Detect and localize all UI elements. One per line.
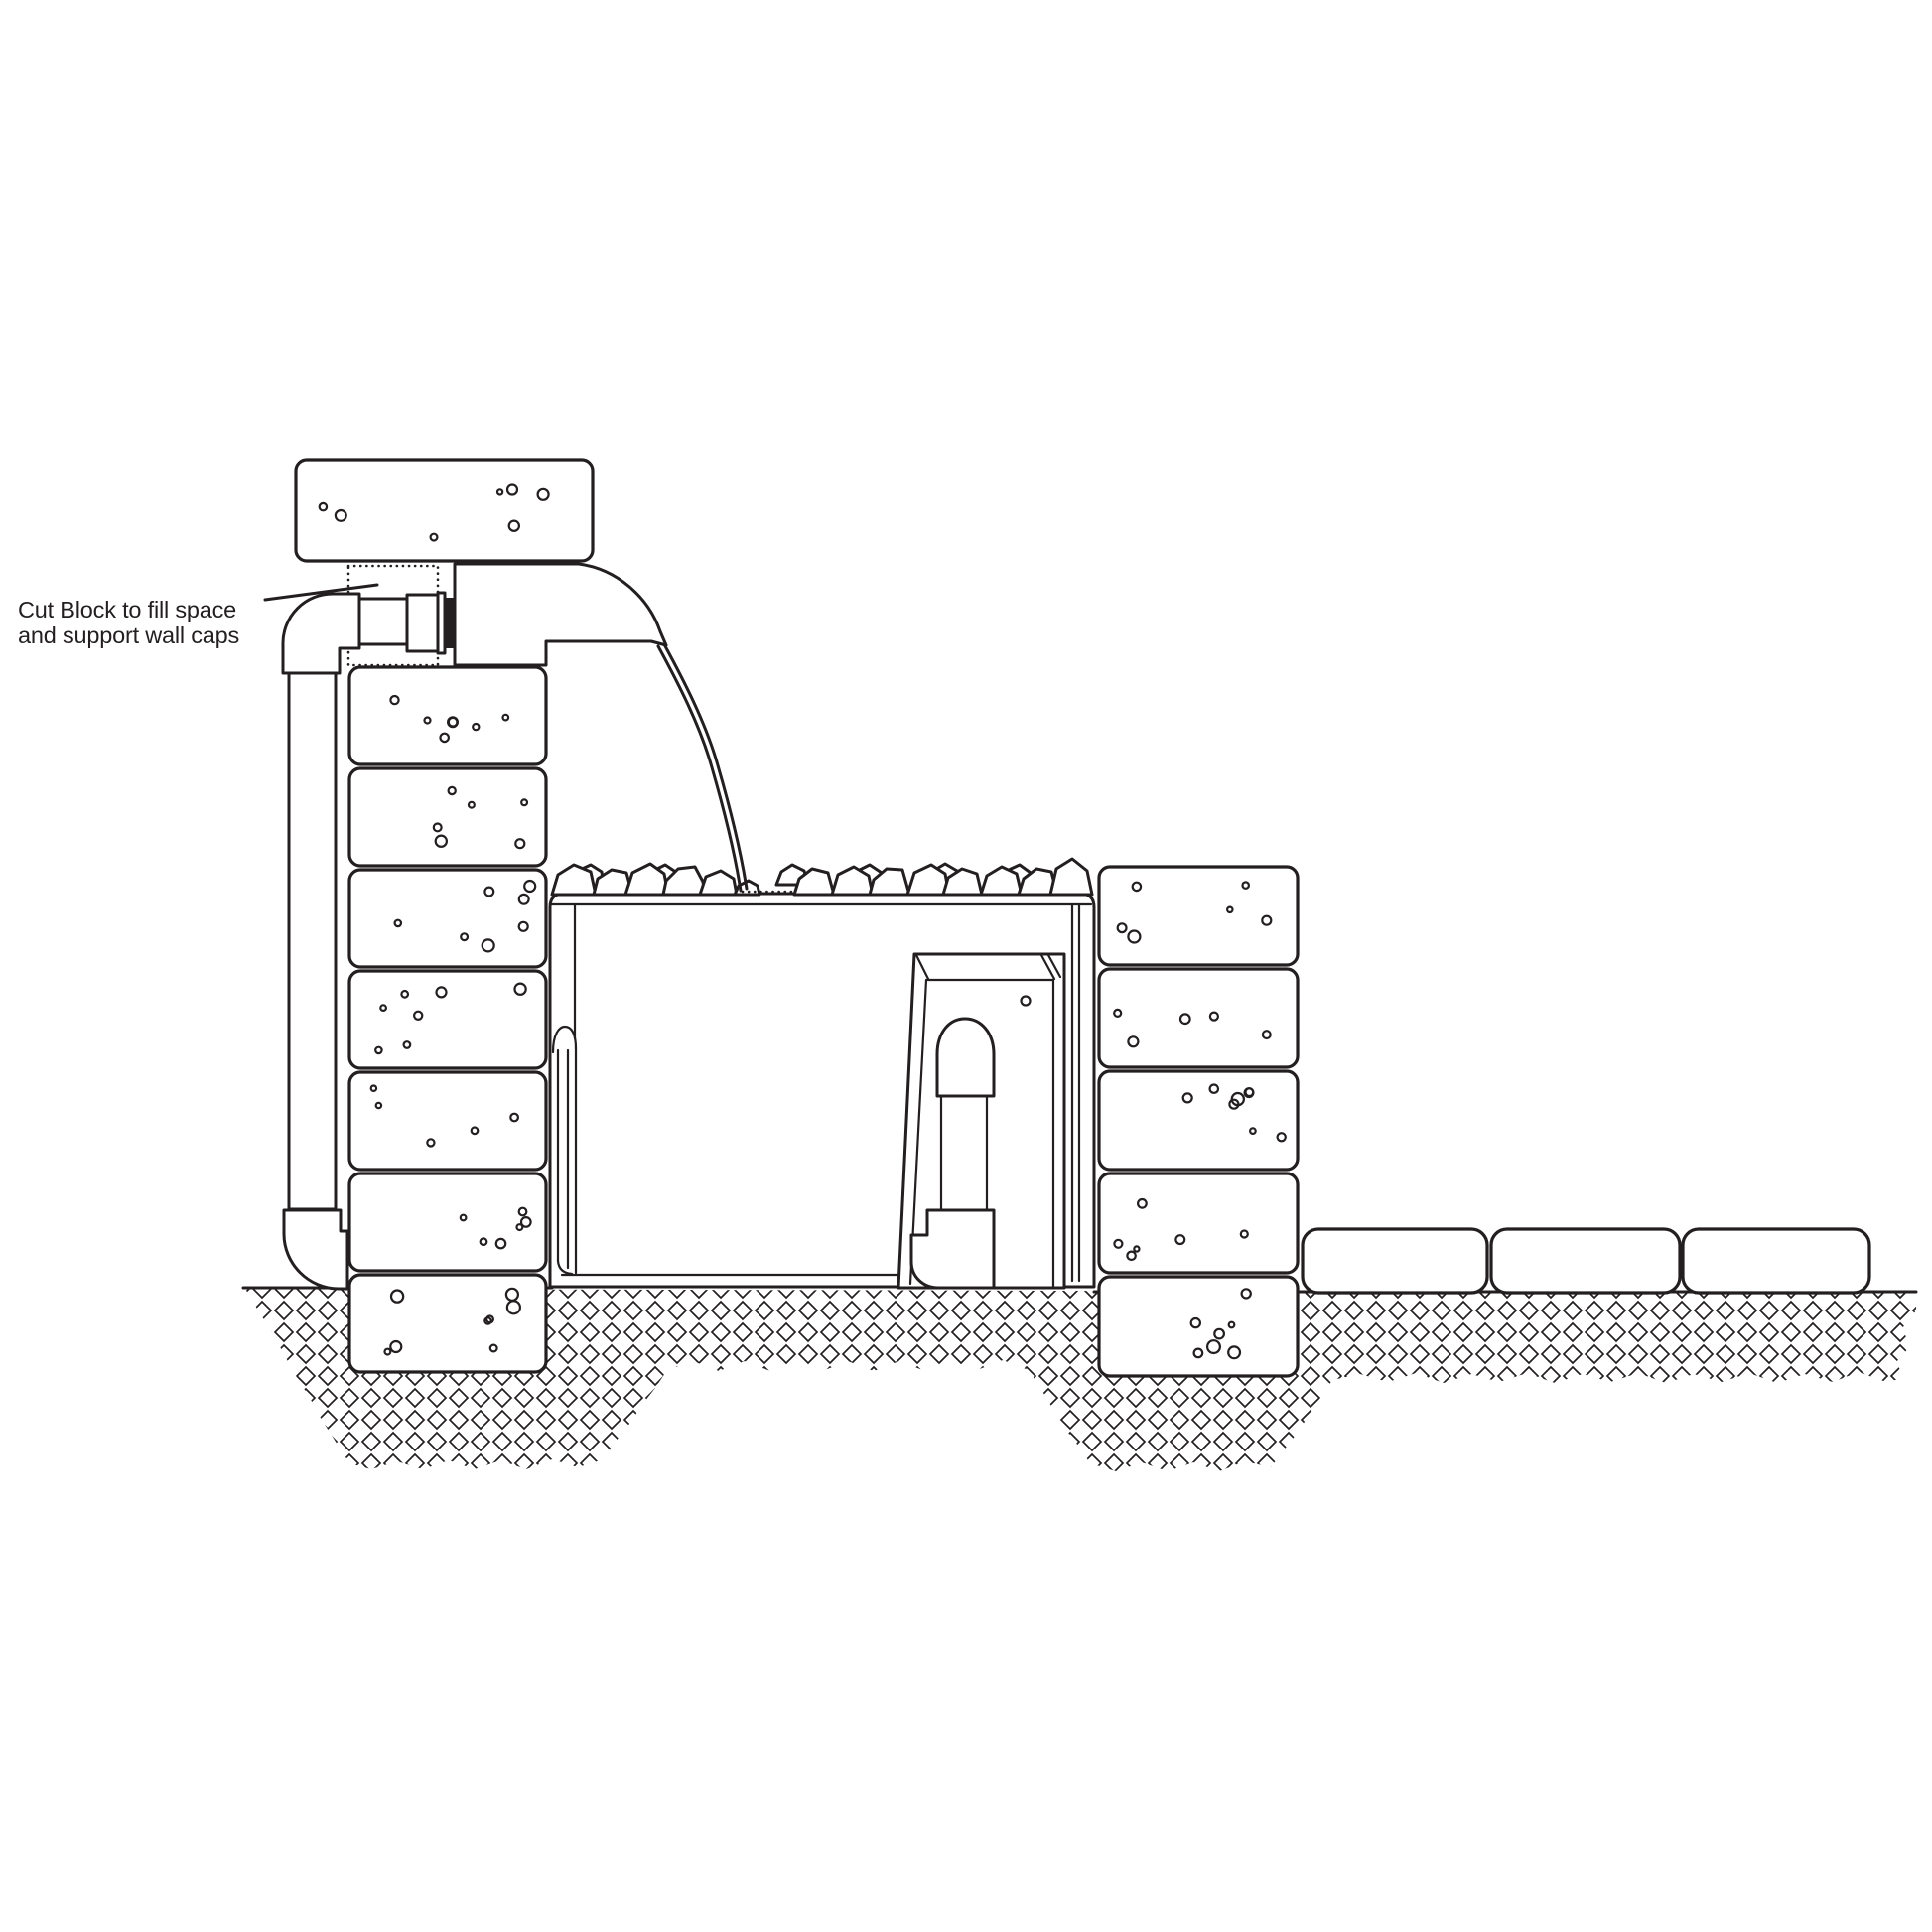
wall-block: [1099, 969, 1298, 1067]
bulkhead-gasket: [445, 598, 454, 648]
annotation-text-line1: Cut Block to fill space: [18, 597, 236, 622]
waterfall-cross-section-page: Cut Block to fill space and support wall…: [0, 0, 1932, 1932]
supply-pipe-elbow-bottom: [284, 1210, 347, 1289]
right-retaining-wall-column: [1099, 867, 1298, 1376]
water-stream: [658, 644, 747, 891]
supply-pipe-elbow-top: [283, 594, 359, 673]
ground-paver: [1683, 1229, 1869, 1293]
wall-block: [349, 870, 546, 967]
waterfall-spillway: [455, 564, 666, 665]
bulkhead-flange: [438, 593, 445, 653]
ground-paver: [1491, 1229, 1680, 1293]
annotation-text-line2: and support wall caps: [18, 622, 239, 648]
wall-block: [349, 768, 546, 866]
wall-block: [1099, 1071, 1298, 1170]
pipe-coupling: [407, 595, 438, 651]
rock-layer: [552, 859, 1092, 895]
ground-paver-blocks: [1303, 1229, 1869, 1293]
wall-cap-block: [296, 460, 593, 561]
left-retaining-wall-column: [349, 667, 546, 1372]
waterfall-cross-section-diagram: Cut Block to fill space and support wall…: [0, 0, 1932, 1932]
supply-pipe-horizontal: [359, 599, 407, 644]
pump-vault: [898, 954, 1064, 1288]
wall-block: [349, 1173, 546, 1271]
supply-pipe-vertical: [289, 673, 336, 1209]
ground-paver: [1303, 1229, 1487, 1293]
wall-block: [349, 667, 546, 764]
